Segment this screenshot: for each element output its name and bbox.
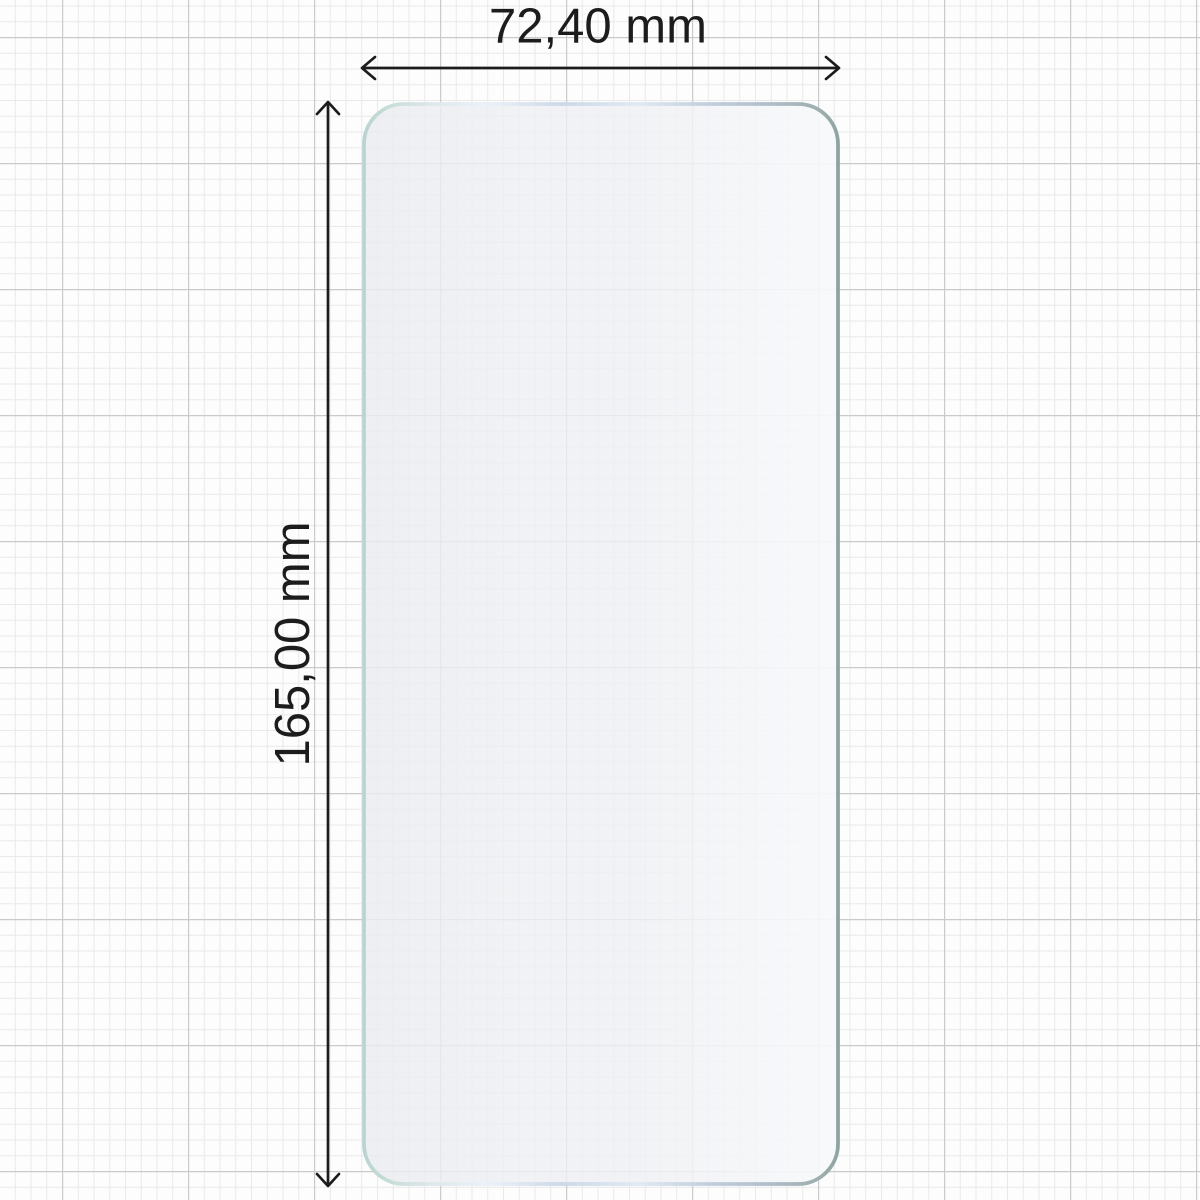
svg-text:165,00 mm: 165,00 mm	[266, 522, 320, 767]
svg-text:72,40 mm: 72,40 mm	[489, 0, 707, 54]
